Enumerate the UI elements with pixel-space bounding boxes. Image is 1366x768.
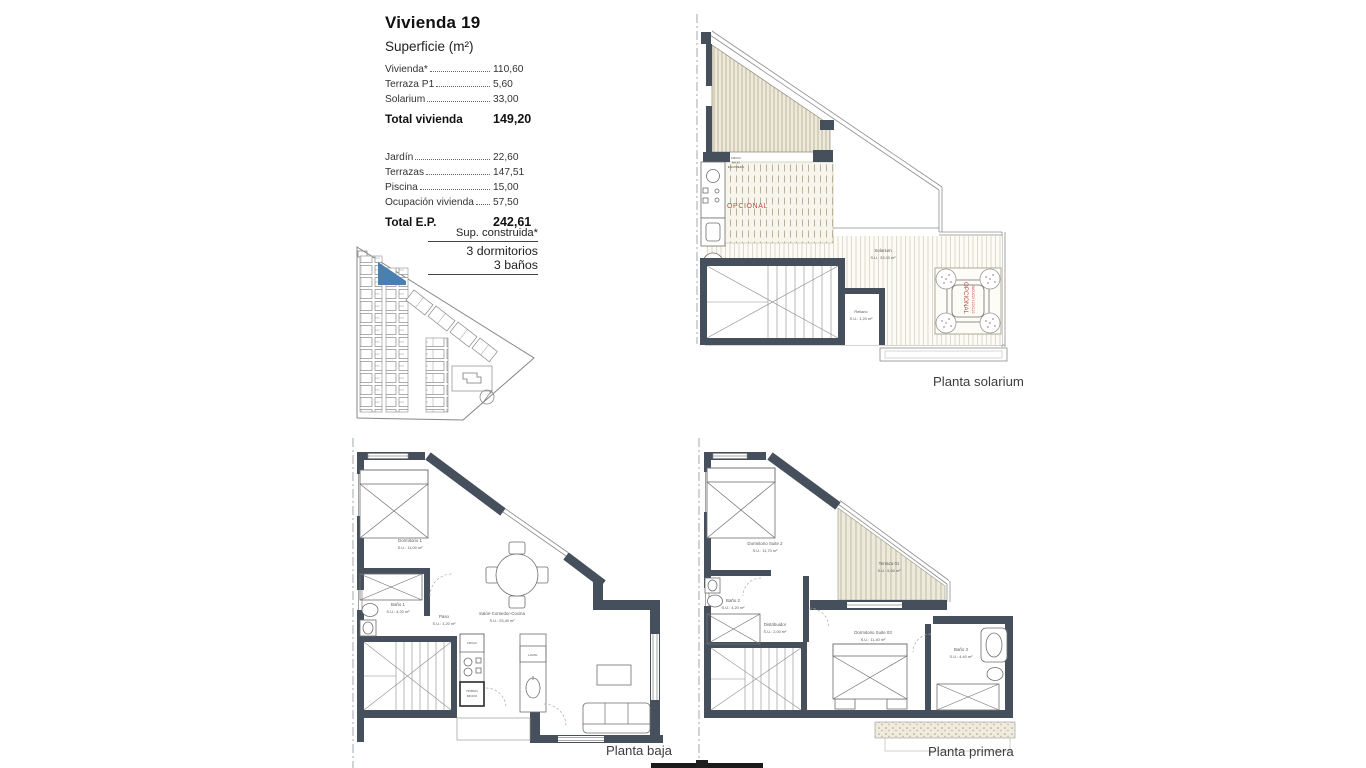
oven-label: HORNO xyxy=(466,689,478,693)
dishwasher-label: LAVAV. xyxy=(528,653,538,657)
boundary-marker xyxy=(696,760,708,768)
surface-row: Solarium33,00 xyxy=(385,94,539,105)
surface-subtitle: Superficie (m²) xyxy=(385,39,539,54)
bed xyxy=(833,644,907,709)
bano2-label: Baño 2 xyxy=(726,598,740,603)
stairs xyxy=(364,642,451,710)
paso-label: Paso xyxy=(439,614,450,619)
row-value: 15,00 xyxy=(493,182,539,193)
distribuidor-label: Distribuidor xyxy=(764,622,787,627)
caption-planta-solarium: Planta solarium xyxy=(933,374,1024,389)
site-housing-row-south xyxy=(426,338,448,412)
dorm1-label: Dormitorio 1 xyxy=(398,538,422,543)
surface-row: Ocupación vivienda57,50 xyxy=(385,197,539,208)
row-label: Piscina xyxy=(385,182,418,193)
salon-area-label: S.U.: 25,40 m² xyxy=(489,618,515,623)
row-label: Vivienda* xyxy=(385,64,428,75)
kitchen-units: FRIGO HORNO MICRO xyxy=(460,634,484,706)
kitchen-island: LAVAV. xyxy=(520,634,546,712)
floorplan-sheet: { "title_block": { "title": "Vivienda 19… xyxy=(0,0,1366,768)
bano3-area-label: S.U.: 4,40 m² xyxy=(950,654,974,659)
terraza-label: Terraza 01 xyxy=(879,561,900,566)
toilet-icon xyxy=(362,604,378,617)
surface-row: Jardín22,60 xyxy=(385,152,539,163)
row-value: 57,50 xyxy=(493,197,539,208)
kitchen-note: FRIGO xyxy=(731,156,741,160)
dot-leader xyxy=(436,86,490,87)
page-title: Vivienda 19 xyxy=(385,13,539,33)
total-value: 149,20 xyxy=(493,112,539,126)
row-label: Terrazas xyxy=(385,167,424,178)
solarium-area-label: S.U.: 33,00 m² xyxy=(870,255,896,260)
row-label: Solarium xyxy=(385,94,425,105)
suite03-label: Dormitorio Suite 03 xyxy=(854,630,892,635)
diagonal-wall xyxy=(770,456,838,506)
planta-baja-floorplan: FRIGO HORNO MICRO LAVAV. Dormitorio 1 S xyxy=(348,438,690,768)
surface-row: Vivienda*110,60 xyxy=(385,64,539,75)
row-label: Terraza P1 xyxy=(385,79,434,90)
bed xyxy=(360,470,428,538)
total-label: Total vivienda xyxy=(385,112,463,126)
jacuzzi-size-label: JACUZZI 122X122 xyxy=(971,285,975,314)
stairs xyxy=(711,648,801,710)
terraza-area xyxy=(838,508,945,600)
solarium-label: Solarium xyxy=(874,248,892,253)
row-value: 5,60 xyxy=(493,79,539,90)
paso-area-label: S.U.: 1,20 m² xyxy=(433,621,457,626)
bano1-area-label: S.U.: 4,20 m² xyxy=(387,609,411,614)
solarium-floorplan: ACS FRIGO BAJO ENCIMERA OPCIONAL Rellano… xyxy=(693,10,1065,402)
dorm1-area-label: S.U.: 11,00 m² xyxy=(398,545,423,550)
plant-icon xyxy=(936,269,956,289)
optional-kitchen-label: OPCIONAL xyxy=(727,203,768,210)
suite2-label: Dormitorio Suite 2 xyxy=(747,541,783,546)
row-value: 110,60 xyxy=(493,64,539,75)
compass-icon xyxy=(480,390,494,404)
surface-info-panel: Vivienda 19 Superficie (m²) Vivienda*110… xyxy=(385,13,539,233)
diagonal-wall xyxy=(428,456,503,512)
bano3-label: Baño 3 xyxy=(954,647,968,652)
oven-label: MICRO xyxy=(467,694,478,698)
plant-icon xyxy=(936,313,956,333)
coffee-table xyxy=(597,665,631,685)
total-vivienda-row: Total vivienda149,20 xyxy=(385,112,539,126)
site-plan xyxy=(350,240,542,422)
site-plot-clubhouse xyxy=(452,366,492,391)
sofa xyxy=(583,703,650,733)
dot-leader xyxy=(476,204,490,205)
row-label: Jardín xyxy=(385,152,413,163)
bano2-area-label: S.U.: 4,20 m² xyxy=(722,605,746,610)
suite03-area-label: S.U.: 11,40 m² xyxy=(861,637,886,642)
dot-leader xyxy=(426,174,490,175)
dot-leader xyxy=(415,159,490,160)
surface-row: Terraza P15,60 xyxy=(385,79,539,90)
row-value: 22,60 xyxy=(493,152,539,163)
optional-jacuzzi-label: OPCIONAL xyxy=(962,282,969,315)
caption-planta-baja: Planta baja xyxy=(606,743,672,758)
terraza-area-label: S.U.: 5,60 m² xyxy=(878,568,902,573)
stairs xyxy=(700,258,845,345)
plant-icon xyxy=(980,313,1000,333)
kitchen-note: ENCIMERA xyxy=(728,165,745,169)
rellano-area-label: S.U.: 1,20 m² xyxy=(850,316,874,321)
dining-table xyxy=(486,542,548,608)
toilet-icon xyxy=(708,595,723,607)
bathroom-fixtures xyxy=(937,628,1007,710)
rellano-room: Rellano S.U.: 1,20 m² xyxy=(845,288,885,345)
suite2-area-label: S.U.: 11,70 m² xyxy=(753,548,778,553)
kitchen-note: BAJO xyxy=(732,161,741,165)
row-value: 33,00 xyxy=(493,94,539,105)
toilet-icon xyxy=(987,668,1003,681)
bed xyxy=(707,468,775,538)
row-value: 147,51 xyxy=(493,167,539,178)
bathroom-fixtures xyxy=(705,578,760,644)
caption-planta-primera: Planta primera xyxy=(928,744,1014,759)
pergola-area xyxy=(712,45,830,152)
diagonal-wall xyxy=(566,556,603,584)
dot-leader xyxy=(420,189,490,190)
plant-icon xyxy=(980,269,1000,289)
bano1-label: Baño 1 xyxy=(391,602,405,607)
row-label: Ocupación vivienda xyxy=(385,197,474,208)
surface-row: Piscina15,00 xyxy=(385,182,539,193)
surface-row: Terrazas147,51 xyxy=(385,167,539,178)
distribuidor-area-label: S.U.: 2,00 m² xyxy=(764,629,788,634)
planta-primera-floorplan: Dormitorio Suite 2 S.U.: 11,70 m² Terraz… xyxy=(695,438,1037,768)
terrace-railing xyxy=(880,348,1007,361)
dot-leader xyxy=(430,71,490,72)
jacuzzi: OPCIONAL JACUZZI 122X122 xyxy=(935,268,1001,334)
salon-label: Salón-Comedor-Cocina xyxy=(479,611,525,616)
rellano-label: Rellano xyxy=(854,309,867,314)
fridge-label: FRIGO xyxy=(467,641,477,645)
dot-leader xyxy=(427,101,490,102)
sink-icon xyxy=(360,620,376,636)
